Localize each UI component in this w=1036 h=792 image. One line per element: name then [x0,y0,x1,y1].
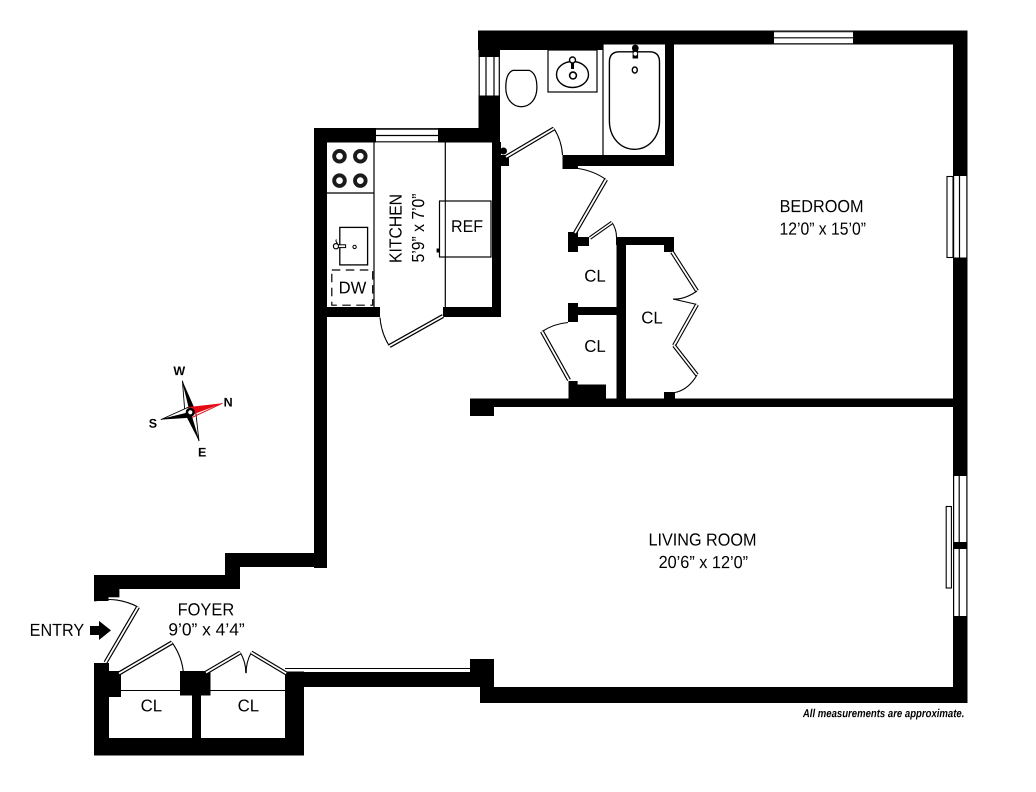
svg-text:REF: REF [451,217,483,236]
svg-text:ENTRY: ENTRY [30,620,85,640]
svg-text:20’6” x 12’0”: 20’6” x 12’0” [659,552,749,572]
svg-text:CL: CL [238,696,260,715]
svg-text:N: N [224,395,233,409]
svg-text:CL: CL [641,308,663,327]
svg-text:CL: CL [584,337,606,356]
svg-text:DW: DW [339,278,367,297]
svg-text:All measurements are approxima: All measurements are approximate. [802,708,964,720]
svg-text:W: W [173,364,185,378]
svg-text:12’0” x 15’0”: 12’0” x 15’0” [780,219,867,239]
svg-text:KITCHEN: KITCHEN [386,194,406,263]
svg-text:5’9” x 7’0”: 5’9” x 7’0” [408,193,428,262]
svg-text:LIVING ROOM: LIVING ROOM [648,530,756,550]
svg-text:S: S [149,417,157,431]
svg-text:9’0” x 4’4”: 9’0” x 4’4” [168,619,244,639]
svg-text:CL: CL [141,696,163,715]
svg-text:CL: CL [584,267,606,286]
svg-text:FOYER: FOYER [178,599,235,619]
svg-text:BEDROOM: BEDROOM [780,196,864,216]
svg-text:E: E [198,445,206,459]
